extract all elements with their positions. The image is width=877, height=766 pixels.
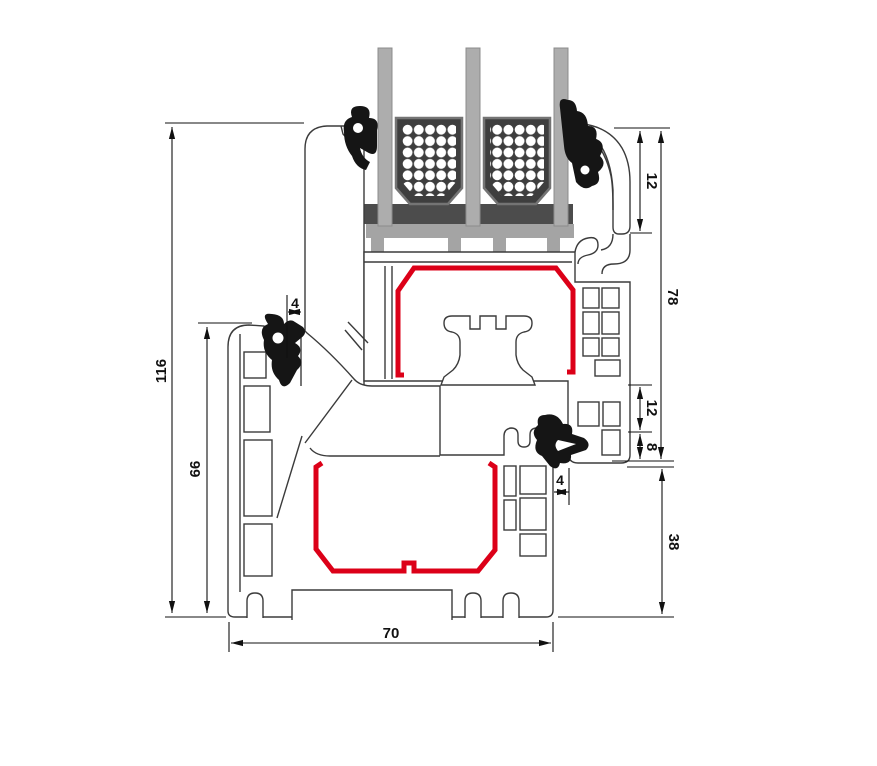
frame-chamber	[244, 352, 266, 378]
glazing-support-tab	[371, 238, 384, 253]
dimension-label-profile-depth: 70	[383, 625, 400, 642]
gasket-hole	[581, 166, 590, 175]
glazing-unit	[364, 48, 574, 253]
dimension-label-bead-height: 12	[643, 173, 660, 190]
glass-pane-2	[466, 48, 480, 226]
cross-section-drawing: 116 66 70 12 78 12 8 38 4 4	[0, 0, 877, 766]
glass-pane-1	[378, 48, 392, 226]
sash-chamber	[603, 402, 620, 426]
frame-chamber	[520, 498, 546, 530]
sash-chamber	[583, 312, 599, 334]
frame-foot-slot	[247, 593, 263, 618]
dimension-label-inner-gasket-gap: 4	[556, 472, 564, 488]
glazing-support-tab	[493, 238, 506, 253]
sash-chamber	[583, 338, 599, 356]
bead-hook-area	[576, 235, 629, 281]
sash-chamber	[578, 402, 599, 426]
sash-chamber	[602, 338, 619, 356]
window-profile-cross-section: 116 66 70 12 78 12 8 38 4 4	[0, 0, 877, 766]
frame-foot-slot	[503, 593, 519, 618]
frame-underside-recess	[292, 590, 452, 620]
frame-chamber	[244, 386, 270, 432]
glazing-support-tab	[547, 238, 560, 253]
dimension-label-lower-frame-height: 38	[665, 534, 682, 551]
frame-chamber	[244, 440, 272, 516]
dimension-label-rebate-upper: 12	[643, 400, 660, 417]
sash-chamber	[602, 430, 620, 455]
glazing-support-tab	[448, 238, 461, 253]
dimension-label-total-height: 116	[153, 359, 170, 383]
gasket-hole	[273, 333, 284, 344]
dimension-label-rebate-lower: 8	[643, 443, 660, 451]
dimension-label-outer-gasket-gap: 4	[291, 295, 299, 311]
dimension-label-frame-height: 66	[187, 461, 204, 478]
frame-chamber	[244, 524, 272, 576]
frame-chamber	[504, 500, 516, 530]
spacer-desiccant-dots-2	[490, 124, 544, 196]
sash-chamber	[602, 288, 619, 308]
frame-chamber	[520, 534, 546, 556]
sash-chamber	[602, 312, 619, 334]
dimension-label-sash-height: 78	[664, 289, 681, 306]
gasket-hole	[353, 123, 363, 133]
sash-chamber	[583, 288, 599, 308]
frame-foot-slot	[465, 593, 481, 618]
frame-chamber	[504, 466, 516, 496]
sash-chamber	[595, 360, 620, 376]
frame-chamber	[520, 466, 546, 494]
spacer-desiccant-dots-1	[402, 124, 456, 196]
